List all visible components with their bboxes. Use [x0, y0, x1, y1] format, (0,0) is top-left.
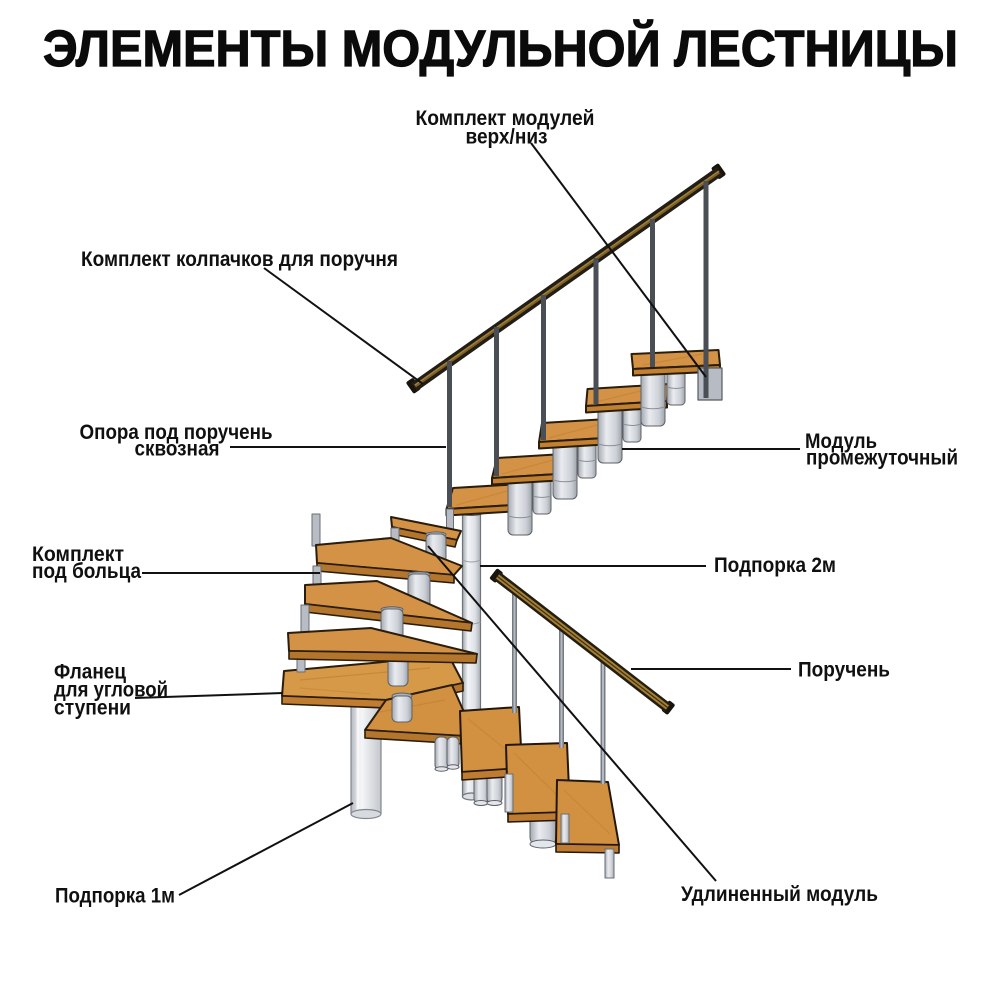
- svg-text:Подпорка 1м: Подпорка 1м: [55, 884, 175, 908]
- svg-text:сквозная: сквозная: [135, 437, 220, 461]
- svg-text:Поручень: Поручень: [798, 658, 890, 682]
- svg-text:ЭЛЕМЕНТЫ МОДУЛЬНОЙ ЛЕСТНИЦЫ: ЭЛЕМЕНТЫ МОДУЛЬНОЙ ЛЕСТНИЦЫ: [43, 19, 958, 77]
- svg-text:Удлиненный модуль: Удлиненный модуль: [681, 882, 878, 906]
- svg-text:Комплект колпачков для поручня: Комплект колпачков для поручня: [81, 247, 398, 271]
- svg-text:верх/низ: верх/низ: [466, 125, 548, 149]
- svg-text:промежуточный: промежуточный: [806, 446, 958, 470]
- svg-text:ступени: ступени: [54, 696, 131, 720]
- svg-text:под больца: под больца: [32, 559, 142, 583]
- svg-text:Подпорка 2м: Подпорка 2м: [714, 553, 836, 577]
